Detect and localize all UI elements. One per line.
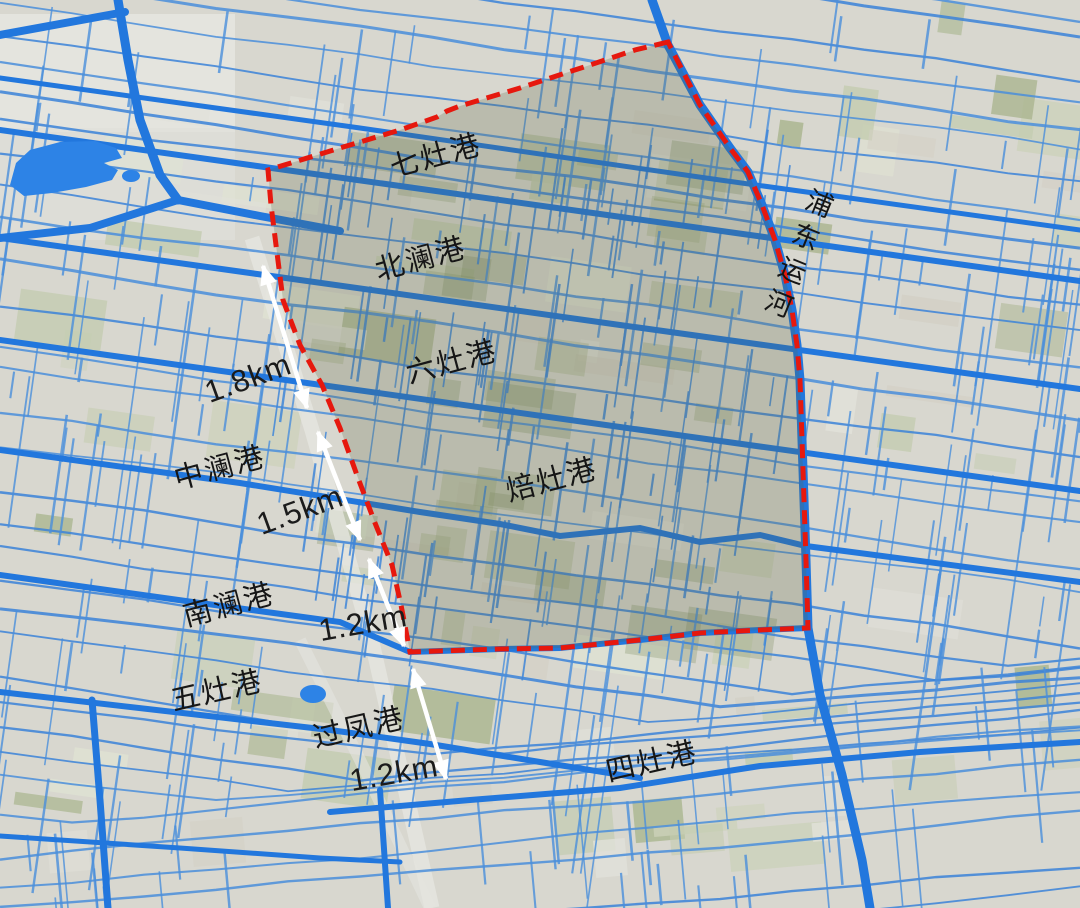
map-canvas: [0, 0, 1080, 908]
pond-guofeng: [300, 685, 326, 703]
pond-topleft: [122, 170, 140, 182]
map-figure: 七灶港 北澜港 六灶港 焙灶港 中澜港 南澜港 五灶港 过凤港 四灶港 浦东运河…: [0, 0, 1080, 908]
